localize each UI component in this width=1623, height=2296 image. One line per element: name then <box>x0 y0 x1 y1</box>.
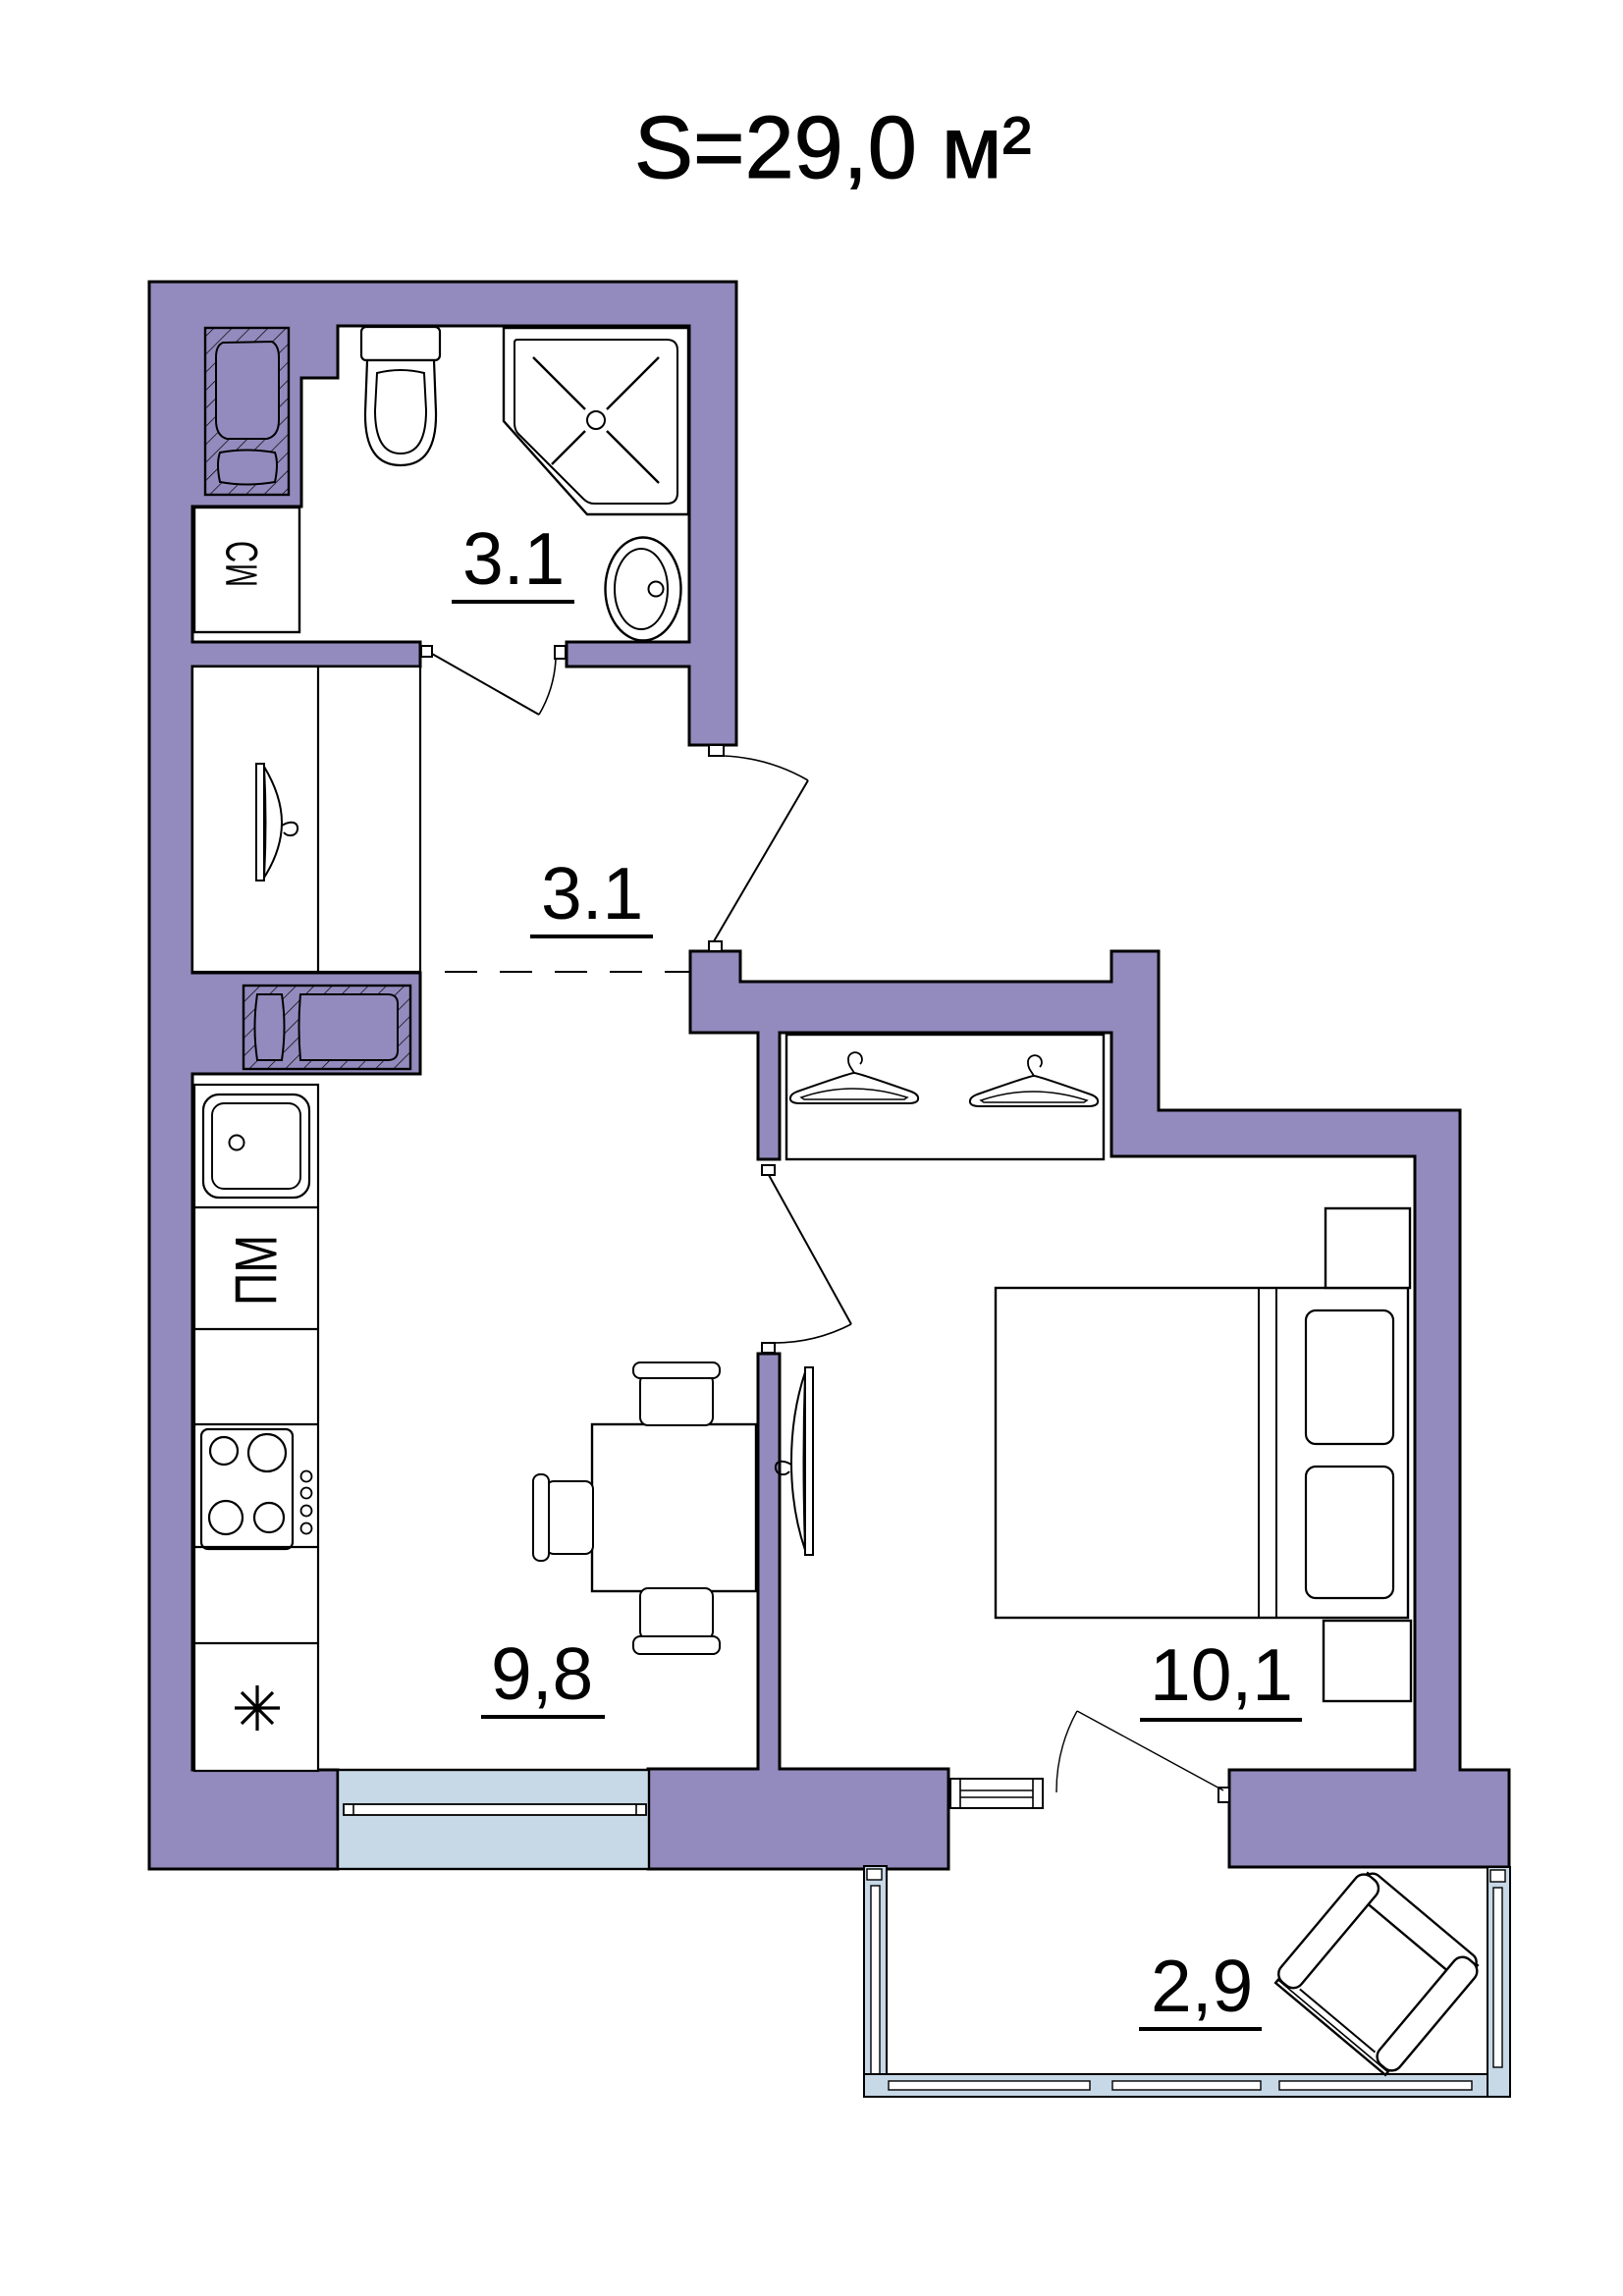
svg-text:М: М <box>217 563 267 587</box>
svg-text:10,1: 10,1 <box>1150 1633 1293 1716</box>
svg-text:3.1: 3.1 <box>541 852 643 934</box>
svg-text:ПМ: ПМ <box>224 1235 290 1306</box>
svg-text:2,9: 2,9 <box>1151 1945 1253 2027</box>
svg-text:С: С <box>217 541 267 562</box>
svg-text:S=29,0 м²: S=29,0 м² <box>634 99 1032 197</box>
svg-text:9,8: 9,8 <box>491 1632 593 1715</box>
svg-text:3.1: 3.1 <box>462 517 565 600</box>
